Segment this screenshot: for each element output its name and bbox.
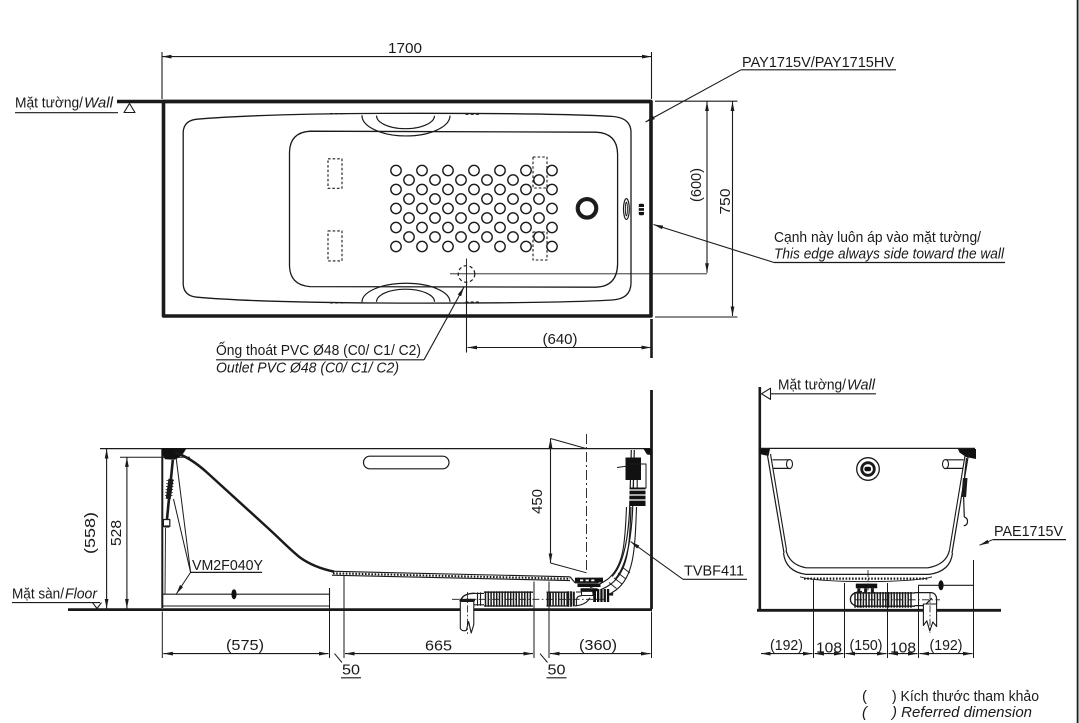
svg-text:Ống thoát PVC Ø48 (C0/ C1/ C2): Ống thoát PVC Ø48 (C0/ C1/ C2) (216, 341, 421, 359)
svg-text:VM2F040Y: VM2F040Y (192, 557, 263, 574)
svg-text:(558): (558) (82, 512, 99, 554)
svg-text:(600): (600) (688, 168, 705, 202)
svg-text:(: ( (862, 688, 867, 705)
svg-text:108: 108 (890, 639, 916, 656)
svg-text:This edge always side toward t: This edge always side toward the wall (774, 246, 1005, 263)
svg-text:(640): (640) (543, 331, 578, 348)
svg-text:50: 50 (548, 662, 566, 679)
svg-text:Floor: Floor (65, 586, 98, 603)
svg-text:PAY1715V/PAY1715HV: PAY1715V/PAY1715HV (742, 54, 894, 71)
svg-text:PAE1715V: PAE1715V (994, 523, 1063, 540)
svg-text:Mặt tường/: Mặt tường/ (778, 377, 847, 394)
svg-text:(: ( (862, 704, 869, 721)
svg-text:) Kích thước tham khảo: ) Kích thước tham khảo (892, 688, 1039, 705)
svg-text:Outlet PVC Ø48 (C0/ C1/ C2): Outlet PVC Ø48 (C0/ C1/ C2) (216, 360, 399, 377)
svg-text:Wall: Wall (84, 95, 114, 112)
svg-text:(192): (192) (770, 637, 803, 654)
svg-text:665: 665 (425, 638, 452, 655)
svg-text:(575): (575) (226, 637, 264, 654)
svg-text:(192): (192) (930, 637, 963, 654)
svg-text:Mặt sàn/: Mặt sàn/ (12, 586, 65, 603)
svg-text:108: 108 (816, 639, 842, 656)
svg-text:1700: 1700 (388, 40, 422, 57)
svg-text:Cạnh này luôn áp vào mặt tường: Cạnh này luôn áp vào mặt tường/ (774, 229, 982, 246)
svg-text:TVBF411: TVBF411 (684, 563, 744, 580)
svg-text:(360): (360) (579, 637, 617, 654)
svg-text:50: 50 (342, 662, 360, 679)
svg-text:750: 750 (717, 189, 734, 215)
svg-text:528: 528 (108, 520, 125, 546)
svg-text:450: 450 (529, 489, 546, 514)
svg-text:Mặt tường/: Mặt tường/ (15, 95, 84, 112)
svg-text:Wall: Wall (847, 377, 876, 394)
svg-text:(150): (150) (850, 637, 883, 654)
svg-text:) Referred dimension: ) Referred dimension (890, 704, 1032, 721)
